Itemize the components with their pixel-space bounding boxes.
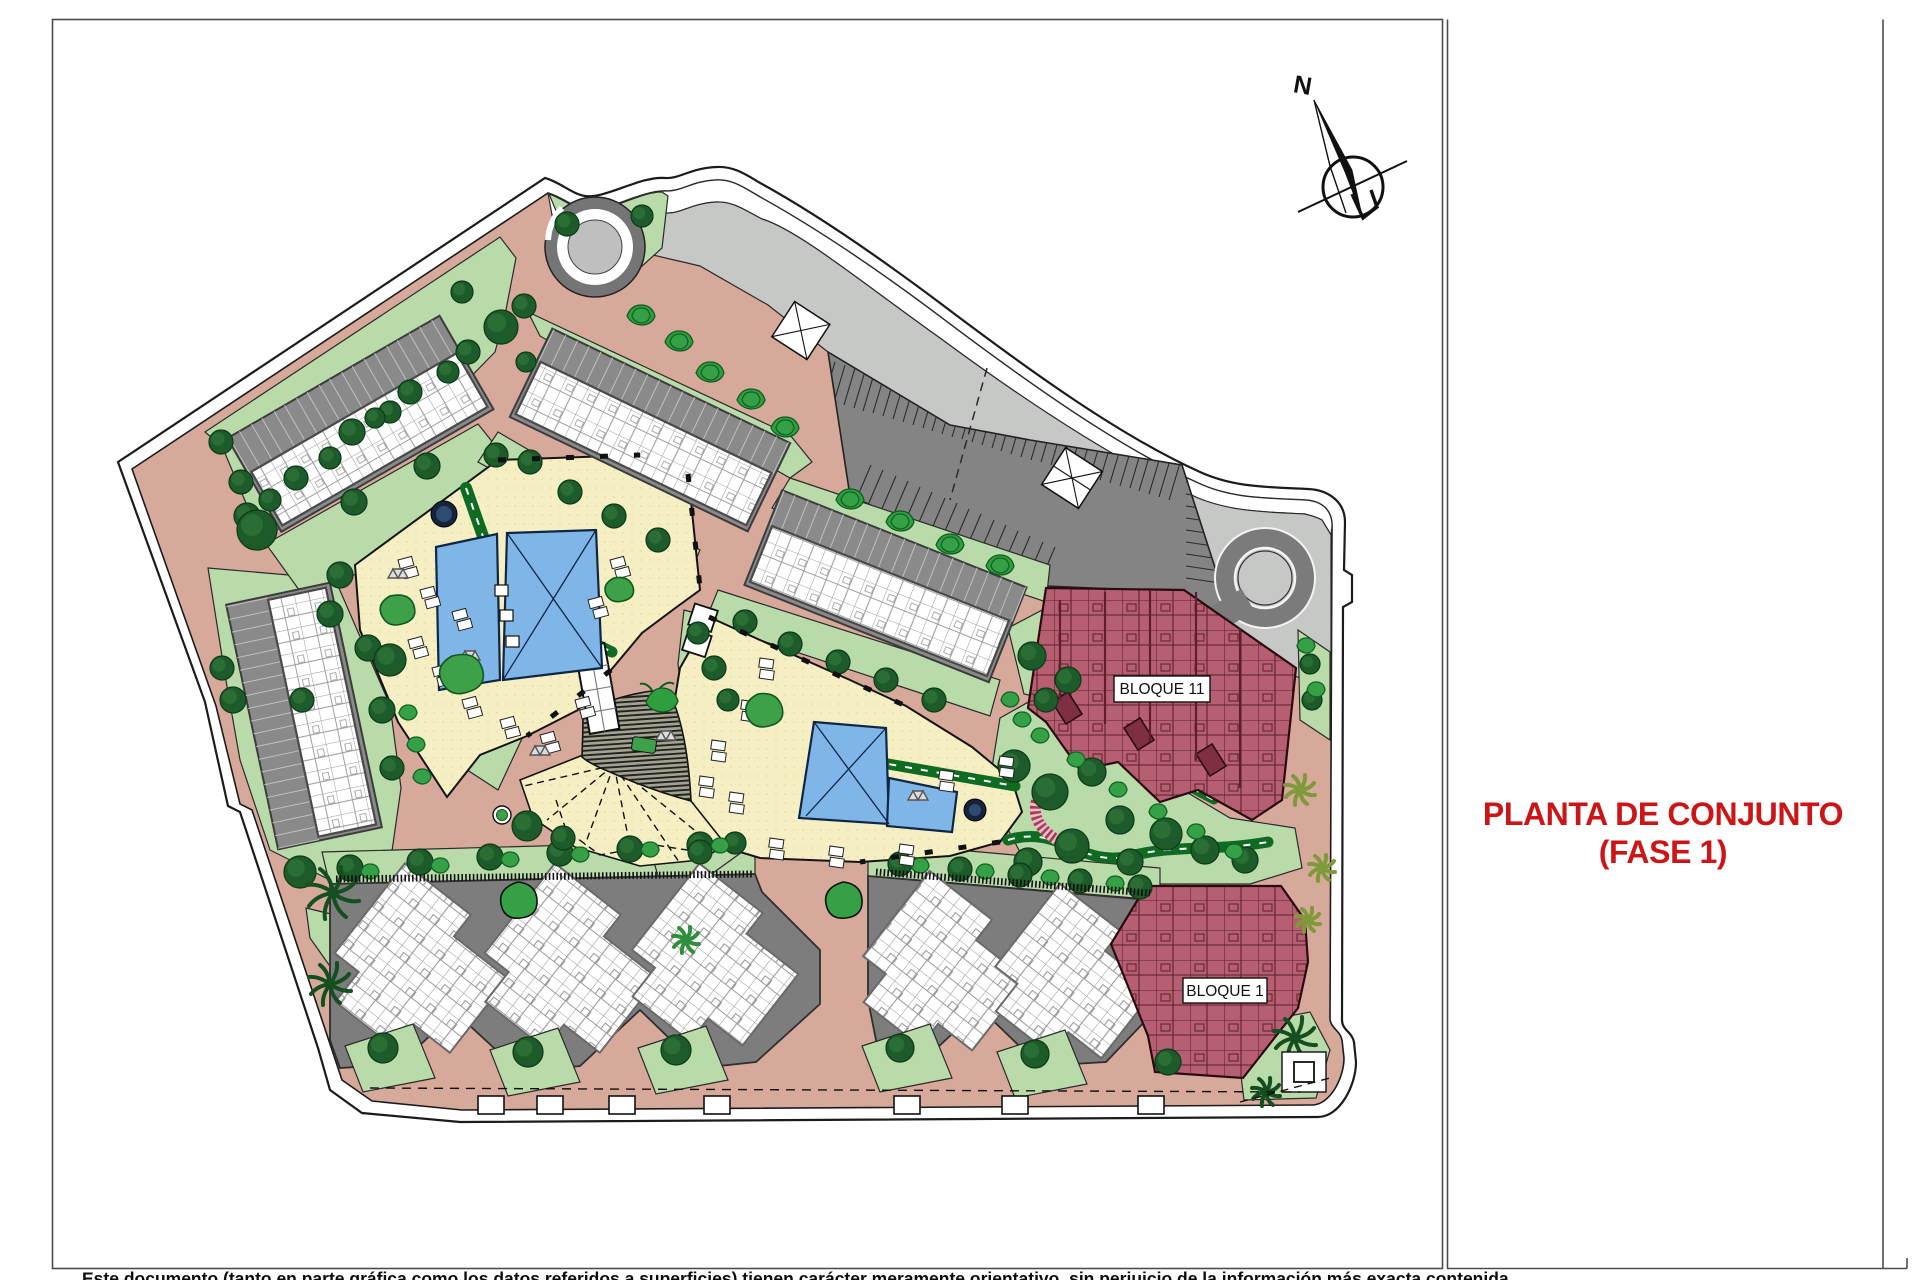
svg-text:(FASE 1): (FASE 1) xyxy=(1599,834,1727,870)
svg-text:PLANTA DE CONJUNTO: PLANTA DE CONJUNTO xyxy=(1483,796,1843,832)
svg-text:Este documento (tanto en parte: Este documento (tanto en parte gráfica c… xyxy=(82,1269,1509,1280)
svg-text:BLOQUE 11: BLOQUE 11 xyxy=(1119,681,1204,698)
svg-text:BLOQUE 1: BLOQUE 1 xyxy=(1186,983,1264,1000)
